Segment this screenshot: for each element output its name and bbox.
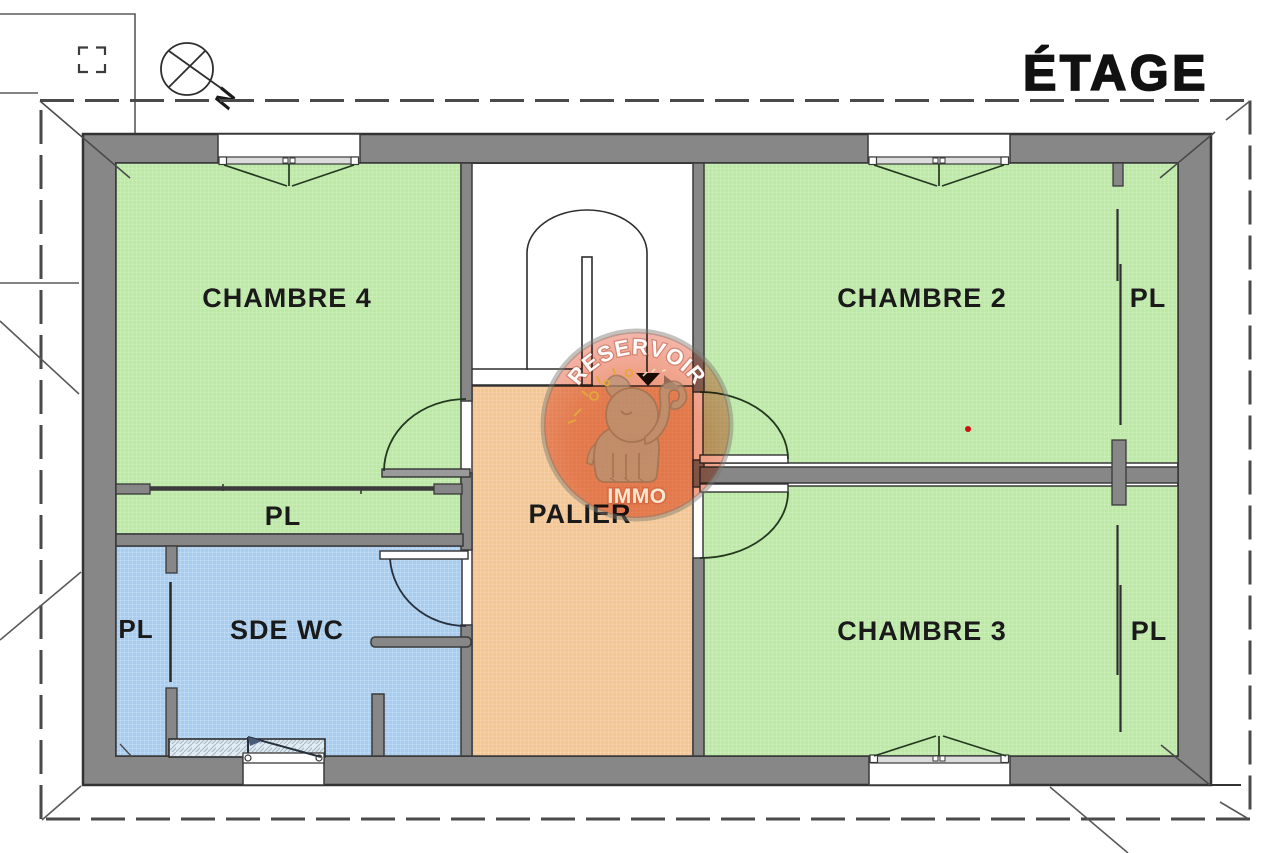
svg-text:CHAMBRE 3: CHAMBRE 3 bbox=[837, 616, 1007, 646]
svg-text:SDE WC: SDE WC bbox=[230, 615, 344, 645]
svg-text:IMMO: IMMO bbox=[607, 485, 666, 508]
svg-text:PL: PL bbox=[118, 614, 153, 644]
svg-text:N: N bbox=[208, 83, 242, 113]
svg-text:PL: PL bbox=[1130, 283, 1167, 313]
svg-text:CHAMBRE 2: CHAMBRE 2 bbox=[837, 283, 1007, 313]
svg-text:PL: PL bbox=[1131, 616, 1168, 646]
svg-text:CHAMBRE 4: CHAMBRE 4 bbox=[202, 283, 372, 313]
svg-text:ÉTAGE: ÉTAGE bbox=[1023, 45, 1209, 101]
svg-text:PL: PL bbox=[265, 501, 302, 531]
